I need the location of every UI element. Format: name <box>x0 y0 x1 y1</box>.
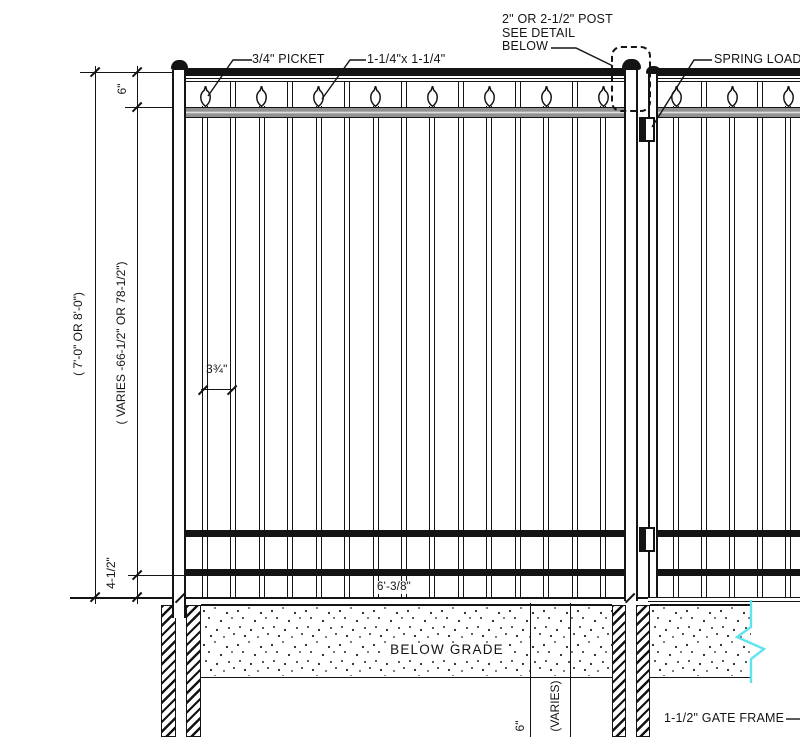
overall-height-dimension: ( 7'-0" OR 8'-0") <box>71 292 85 376</box>
picket-spacing-dimension: 3¾" <box>206 363 228 377</box>
spring-hinge-callout: SPRING LOAD <box>714 53 800 67</box>
post-detail-dashed-box <box>611 46 651 112</box>
post-note-line3: BELOW <box>502 40 613 54</box>
spear-offset-dimension: 6" <box>115 84 129 95</box>
rail-callout: 1-1/4"x 1-1/4" <box>367 53 445 67</box>
bottom-clearance-dimension: 4-1/2" <box>104 557 118 589</box>
picket-leader-line <box>208 60 252 96</box>
post-note-line2: SEE DETAIL <box>502 27 613 41</box>
gate-frame-callout: 1-1/2" GATE FRAME <box>664 712 784 726</box>
below-grade-label: BELOW GRADE <box>387 643 507 657</box>
break-line <box>737 600 764 683</box>
post-note-line1: 2" OR 2-1/2" POST <box>502 13 613 27</box>
panel-width-dimension: 6'-3/8" <box>374 581 414 595</box>
picket-callout: 3/4" PICKET <box>252 53 325 67</box>
spring-hinge-leader-line <box>652 60 712 127</box>
post-note: 2" OR 2-1/2" POST SEE DETAIL BELOW <box>502 13 613 54</box>
footing-top-depth-dimension: 6" <box>513 721 527 732</box>
rail-leader-line <box>322 60 366 99</box>
fence-gate-elevation-drawing: 3/4" PICKET 1-1/4"x 1-1/4" 2" OR 2-1/2" … <box>0 0 800 737</box>
picket-height-dimension: ( VARIES -66-1/2" OR 78-1/2") <box>114 261 128 424</box>
footing-depth-dimension: (VARIES) <box>548 680 562 731</box>
